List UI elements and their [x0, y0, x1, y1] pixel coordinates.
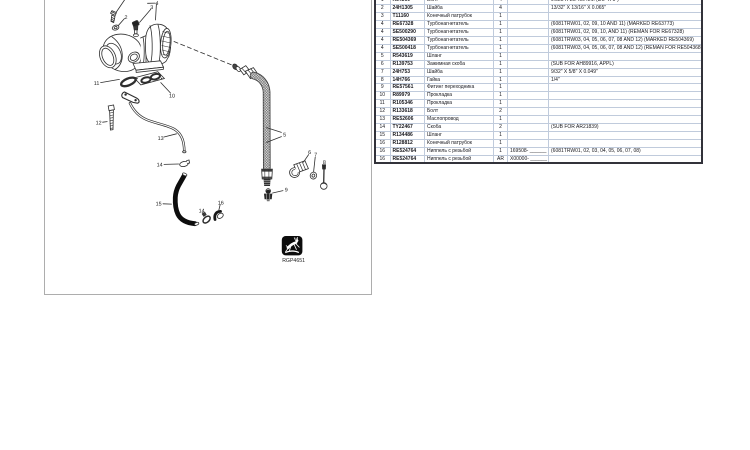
svg-text:8: 8: [323, 160, 326, 166]
svg-text:6: 6: [308, 150, 311, 156]
svg-text:RGP4651: RGP4651: [282, 258, 305, 264]
svg-text:15: 15: [156, 202, 162, 208]
svg-text:11: 11: [94, 81, 100, 87]
svg-text:4: 4: [156, 1, 159, 7]
svg-text:13: 13: [158, 136, 164, 142]
svg-text:12: 12: [96, 121, 102, 127]
svg-text:14: 14: [199, 208, 205, 214]
svg-text:5: 5: [283, 133, 286, 139]
svg-text:2: 2: [125, 15, 128, 21]
svg-text:3: 3: [150, 5, 153, 11]
svg-text:10: 10: [169, 93, 175, 99]
svg-text:16: 16: [218, 200, 224, 206]
svg-text:14: 14: [157, 163, 163, 169]
svg-text:7: 7: [314, 152, 317, 158]
svg-text:9: 9: [285, 188, 288, 194]
